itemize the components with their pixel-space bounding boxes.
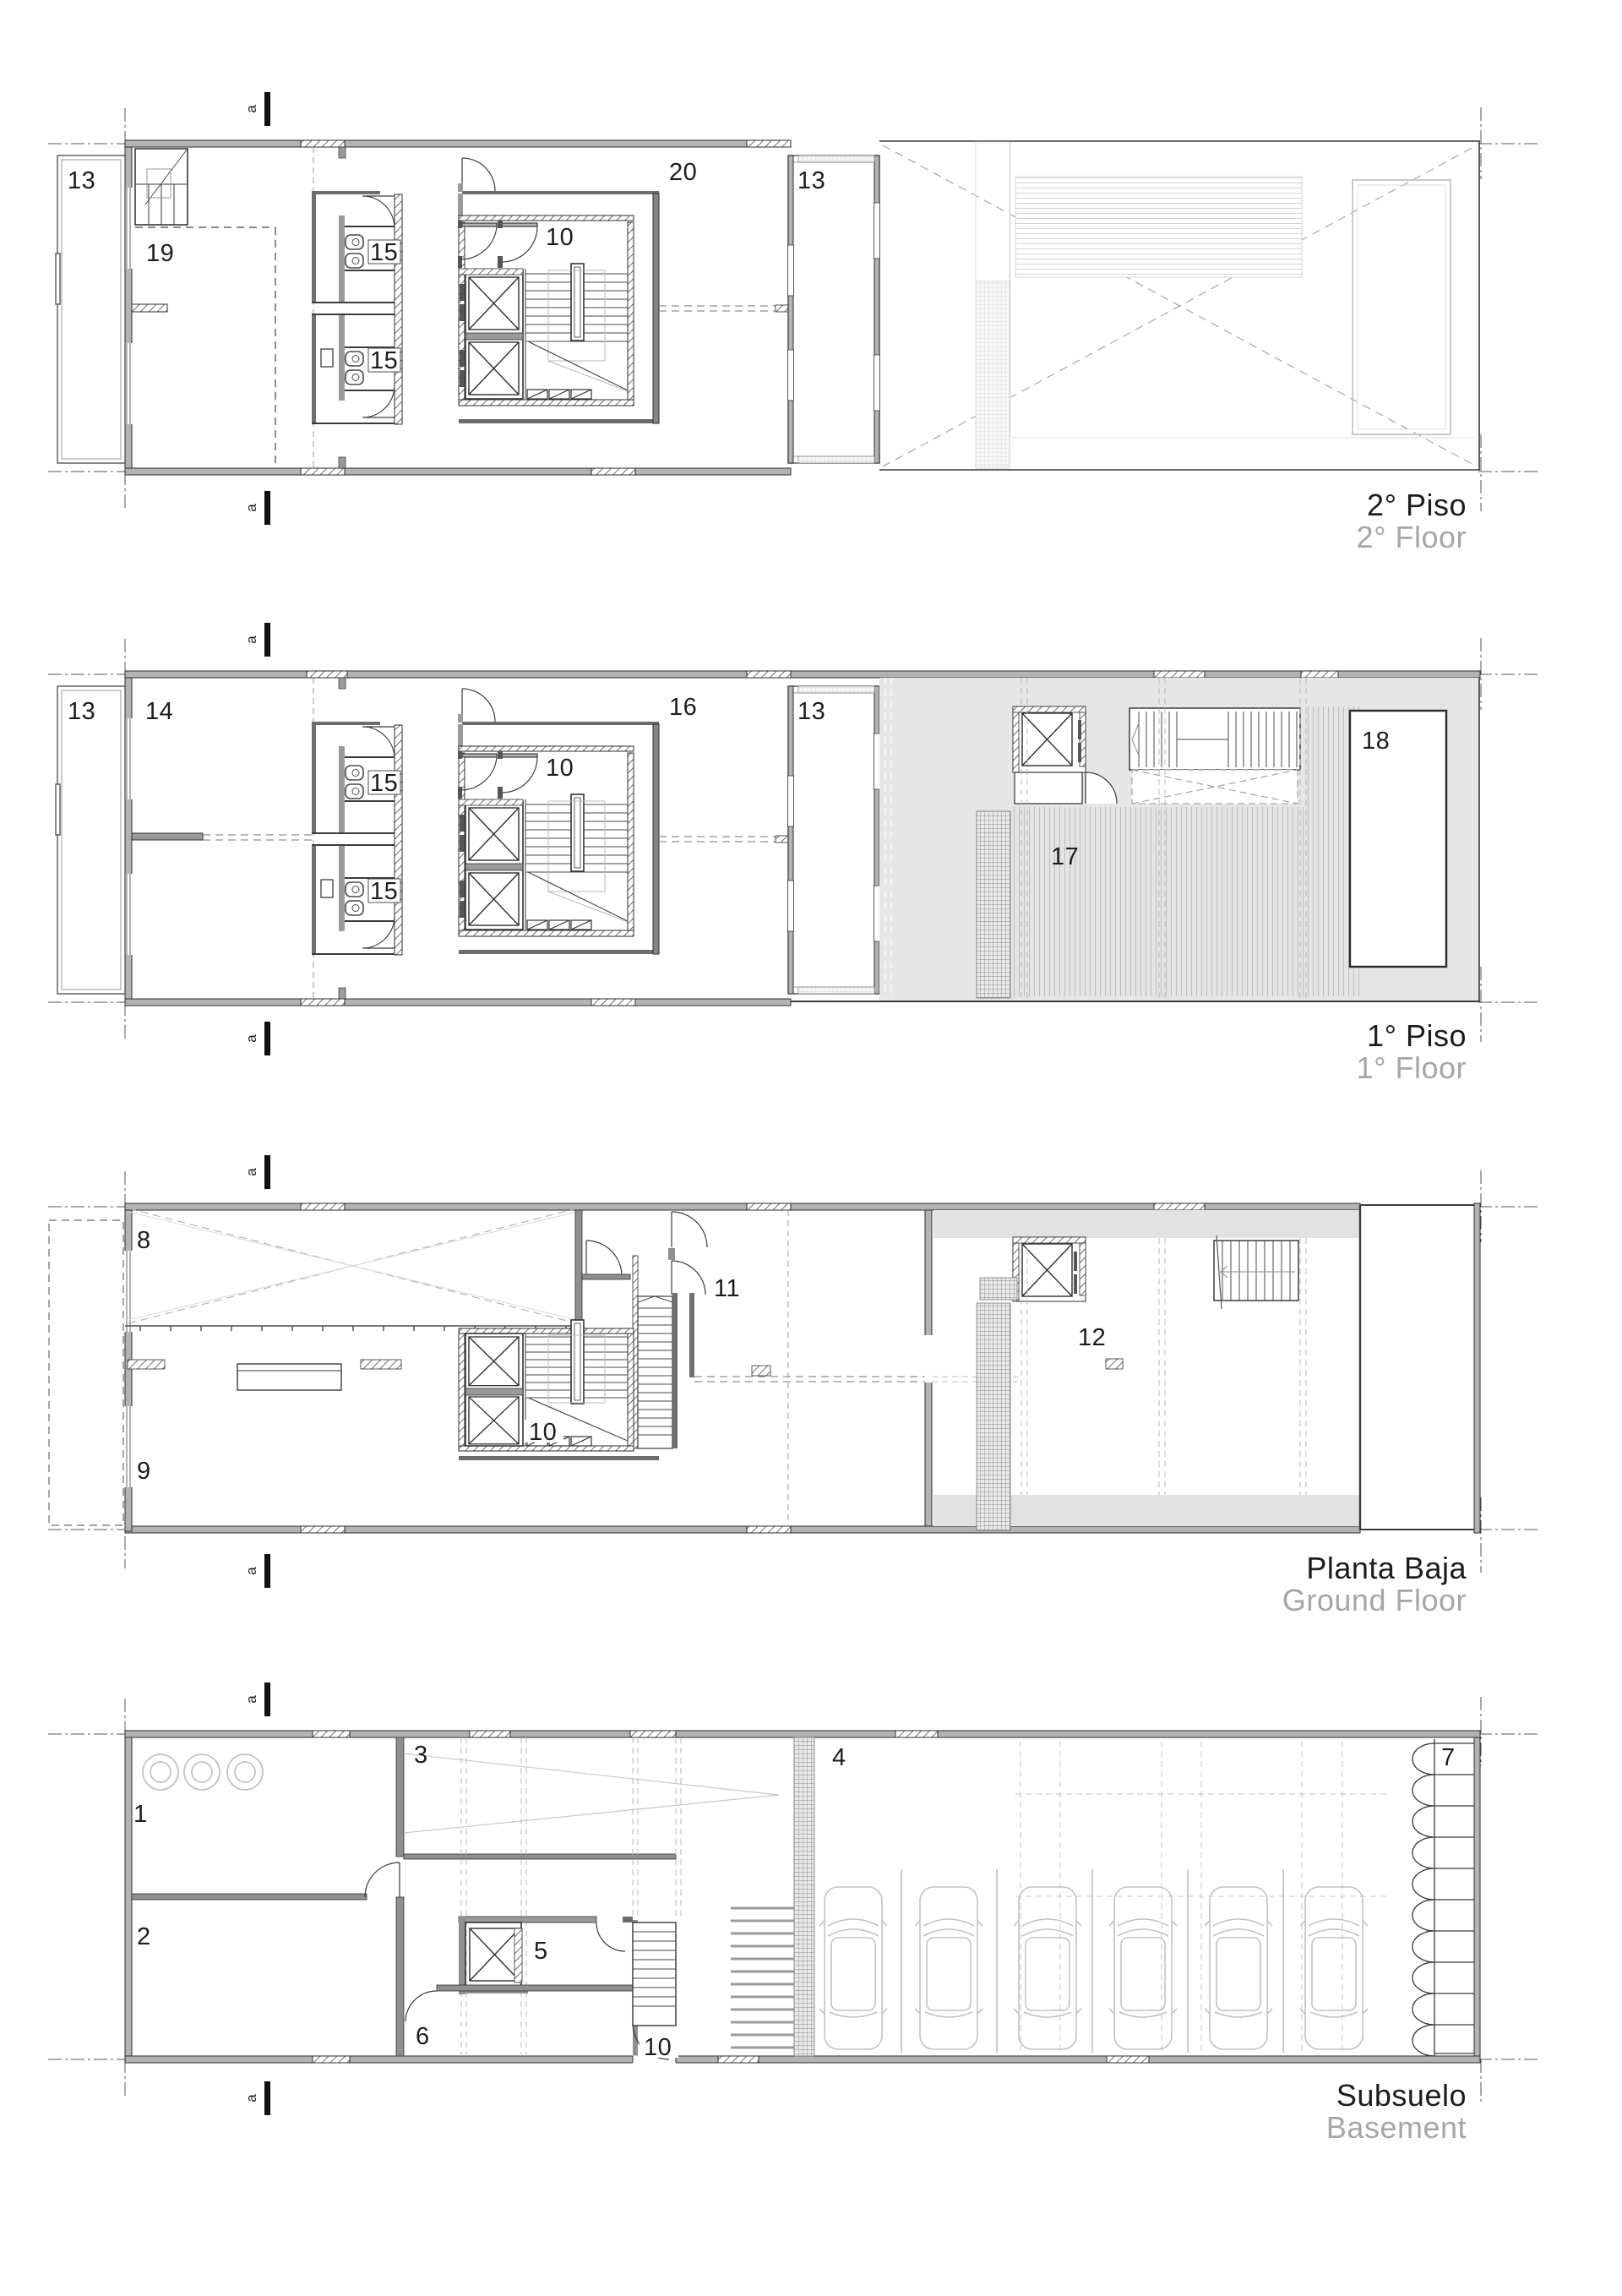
svg-text:Planta Baja: Planta Baja — [1306, 1551, 1467, 1585]
svg-text:12: 12 — [1078, 1324, 1106, 1351]
svg-text:a: a — [243, 1168, 259, 1176]
svg-text:8: 8 — [137, 1227, 151, 1254]
svg-text:13: 13 — [797, 698, 825, 725]
svg-text:a: a — [243, 1034, 259, 1043]
svg-text:5: 5 — [534, 1938, 548, 1965]
svg-text:15: 15 — [370, 347, 398, 374]
svg-text:6: 6 — [416, 2023, 430, 2050]
svg-text:Subsuelo: Subsuelo — [1336, 2078, 1467, 2113]
svg-text:10: 10 — [546, 224, 574, 251]
svg-text:a: a — [243, 105, 259, 113]
svg-text:2: 2 — [137, 1923, 151, 1950]
svg-text:19: 19 — [146, 240, 174, 267]
svg-text:20: 20 — [669, 159, 697, 186]
svg-text:18: 18 — [1362, 728, 1390, 755]
svg-text:13: 13 — [68, 167, 95, 194]
svg-text:13: 13 — [68, 698, 95, 725]
svg-text:10: 10 — [529, 1419, 557, 1446]
svg-text:17: 17 — [1051, 843, 1079, 870]
svg-text:1° Floor: 1° Floor — [1357, 1050, 1467, 1085]
svg-text:2° Floor: 2° Floor — [1357, 520, 1467, 554]
svg-text:a: a — [243, 504, 259, 512]
svg-text:a: a — [243, 1695, 259, 1704]
svg-text:a: a — [243, 1567, 259, 1575]
svg-text:14: 14 — [145, 698, 173, 725]
svg-text:a: a — [243, 2094, 259, 2102]
svg-text:9: 9 — [137, 1458, 151, 1485]
svg-text:15: 15 — [370, 239, 398, 266]
svg-text:1: 1 — [133, 1801, 148, 1828]
svg-text:11: 11 — [714, 1275, 740, 1302]
svg-text:4: 4 — [832, 1744, 846, 1771]
svg-text:a: a — [243, 635, 259, 644]
svg-text:13: 13 — [797, 167, 825, 194]
svg-text:3: 3 — [414, 1742, 428, 1769]
svg-text:1° Piso: 1° Piso — [1367, 1018, 1467, 1053]
svg-text:Basement: Basement — [1326, 2110, 1467, 2145]
svg-text:Ground Floor: Ground Floor — [1282, 1583, 1467, 1617]
svg-text:10: 10 — [644, 2034, 672, 2061]
svg-text:7: 7 — [1441, 1744, 1456, 1771]
svg-text:16: 16 — [669, 694, 697, 721]
svg-text:2° Piso: 2° Piso — [1367, 488, 1467, 522]
